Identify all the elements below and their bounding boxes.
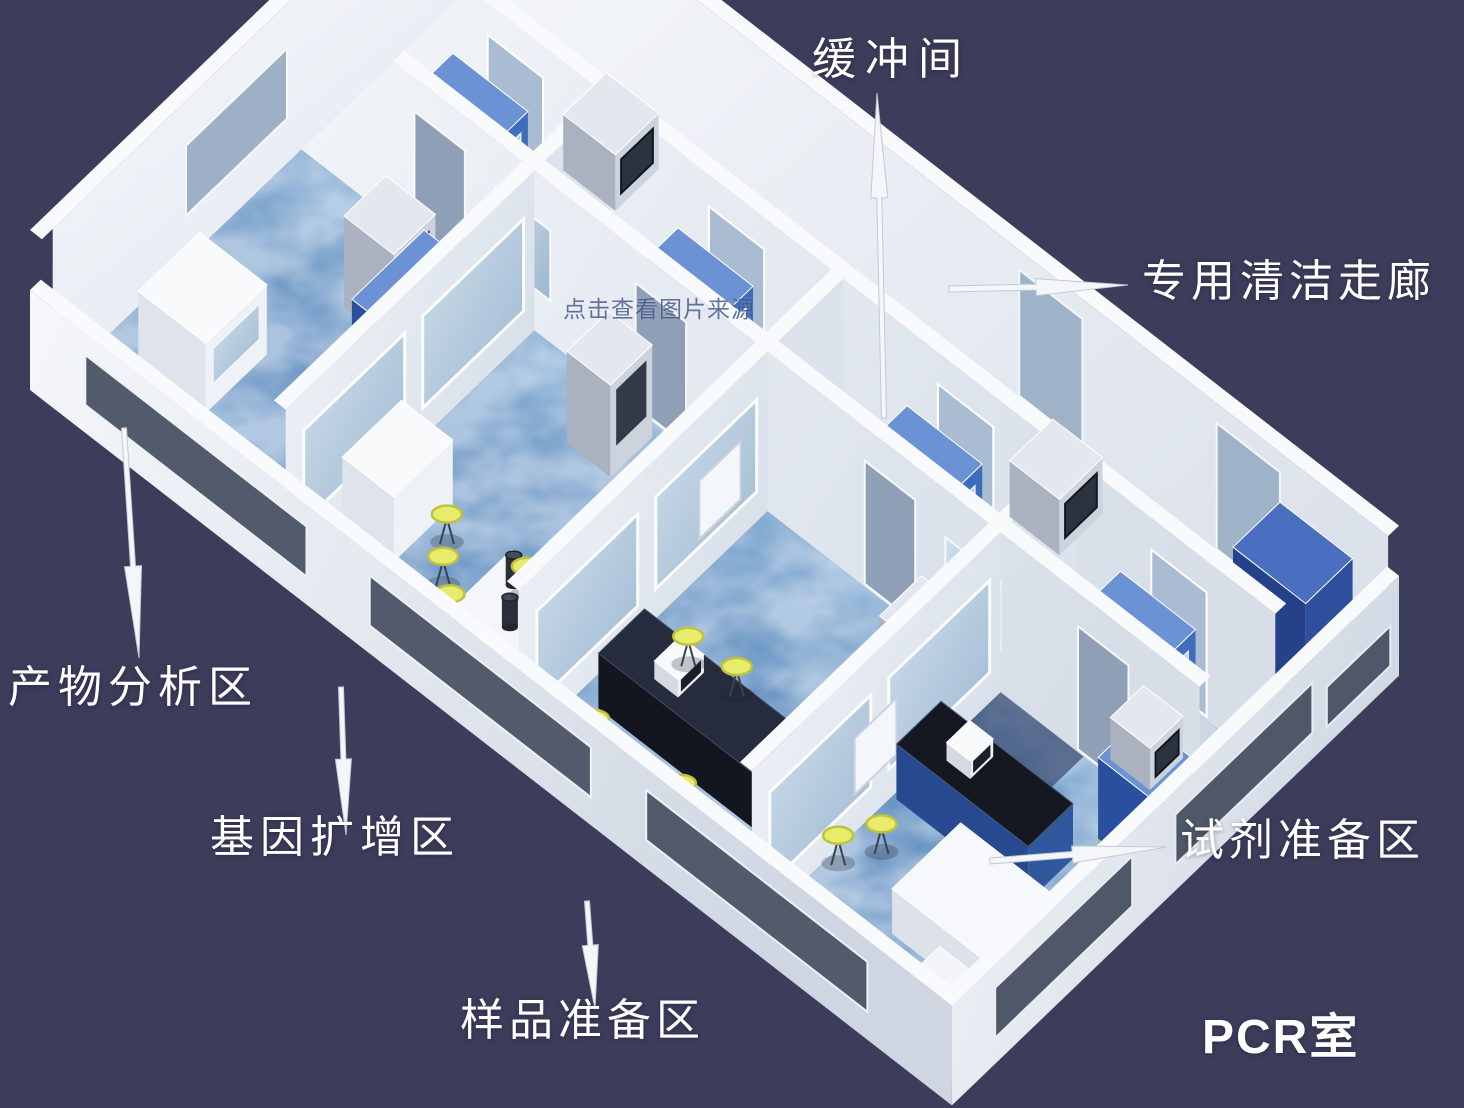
label-reagent-prep: 试剂准备区 bbox=[1180, 817, 1425, 865]
lab-3d-rendering bbox=[0, 0, 1464, 1108]
stool-shadow bbox=[671, 656, 705, 672]
stool bbox=[823, 827, 853, 844]
sample-preparation-arrow bbox=[582, 901, 598, 1009]
label-buffer-room: 缓冲间 bbox=[812, 36, 971, 84]
stool-shadow bbox=[821, 855, 855, 871]
label-sample-prep: 样品准备区 bbox=[460, 997, 705, 1045]
label-product-analysis: 产物分析区 bbox=[8, 664, 258, 712]
label-pcr-room: PCR室 bbox=[1202, 1012, 1359, 1065]
stool bbox=[673, 628, 703, 645]
stool-shadow bbox=[865, 844, 899, 860]
stool-shadow bbox=[720, 686, 754, 702]
pcr-lab-diagram: 缓冲间 专用清洁走廊 产物分析区 基因扩增区 样品准备区 试剂准备区 PCR室 … bbox=[0, 0, 1464, 1108]
vent-chimney bbox=[502, 623, 518, 631]
stool bbox=[432, 506, 462, 523]
label-clean-corridor: 专用清洁走廊 bbox=[1142, 258, 1436, 306]
stool bbox=[428, 548, 458, 565]
stool bbox=[867, 815, 897, 832]
watermark-image-source-link[interactable]: 点击查看图片来源 bbox=[563, 290, 755, 324]
stool bbox=[722, 658, 752, 675]
label-gene-amplification: 基因扩增区 bbox=[210, 814, 460, 862]
